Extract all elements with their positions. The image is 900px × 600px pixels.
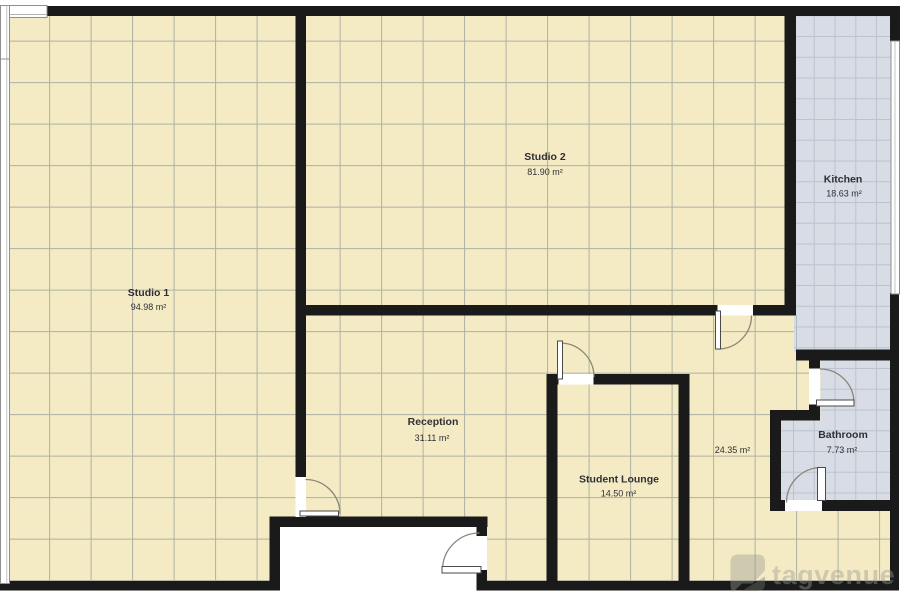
svg-text:Studio 2: Studio 2 — [524, 151, 566, 163]
svg-text:tagvenue: tagvenue — [772, 560, 895, 590]
svg-text:31.11 m²: 31.11 m² — [415, 433, 450, 443]
svg-text:Studio 1: Studio 1 — [128, 287, 170, 299]
svg-text:7.73 m²: 7.73 m² — [827, 445, 858, 455]
svg-text:18.63 m²: 18.63 m² — [826, 189, 862, 199]
svg-text:Bathroom: Bathroom — [818, 429, 868, 441]
svg-text:81.90 m²: 81.90 m² — [527, 167, 563, 177]
svg-text:94.98 m²: 94.98 m² — [131, 302, 167, 312]
svg-text:Reception: Reception — [408, 416, 459, 428]
svg-text:24.35 m²: 24.35 m² — [715, 445, 751, 455]
svg-text:Kitchen: Kitchen — [824, 174, 863, 186]
svg-text:14.50 m²: 14.50 m² — [601, 489, 637, 499]
svg-text:Student Lounge: Student Lounge — [579, 474, 659, 486]
